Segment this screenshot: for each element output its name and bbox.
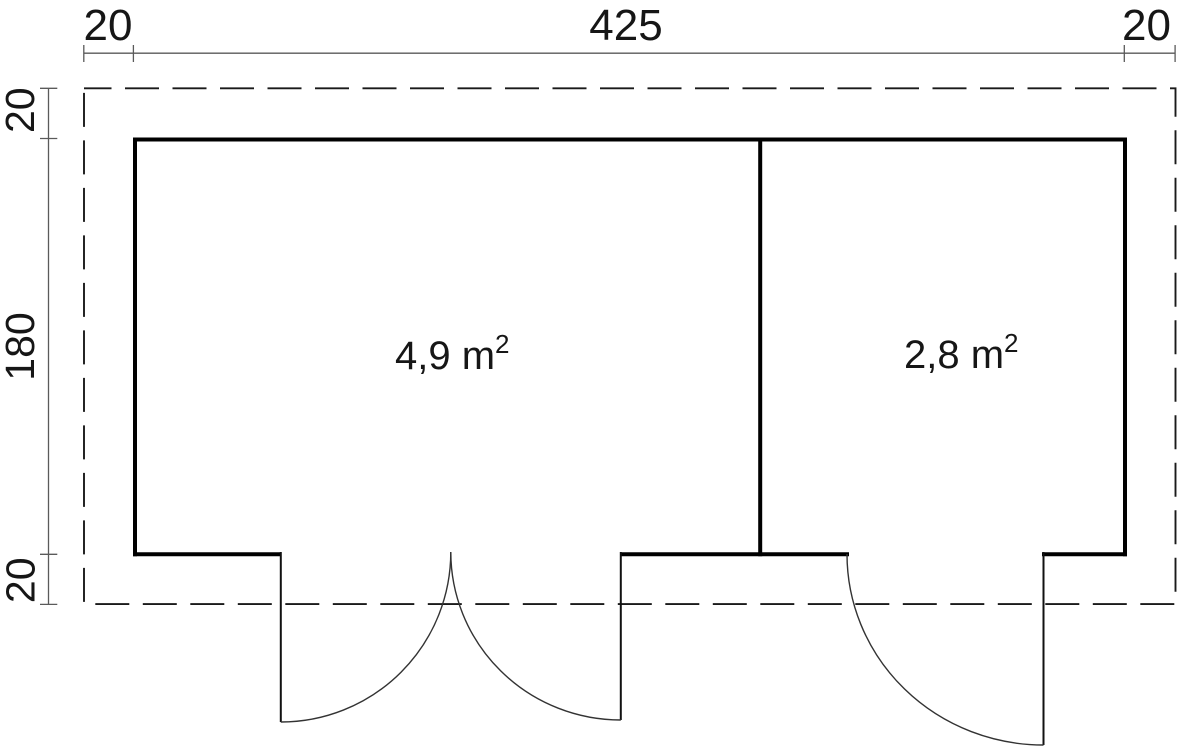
svg-text:2,8 m2: 2,8 m2: [904, 328, 1019, 377]
svg-text:20: 20: [0, 87, 43, 133]
svg-text:20: 20: [84, 1, 133, 50]
svg-text:4,9 m2: 4,9 m2: [395, 329, 510, 378]
svg-text:20: 20: [0, 557, 44, 603]
svg-text:425: 425: [589, 1, 662, 50]
svg-text:180: 180: [0, 312, 43, 380]
svg-text:20: 20: [1122, 1, 1171, 50]
